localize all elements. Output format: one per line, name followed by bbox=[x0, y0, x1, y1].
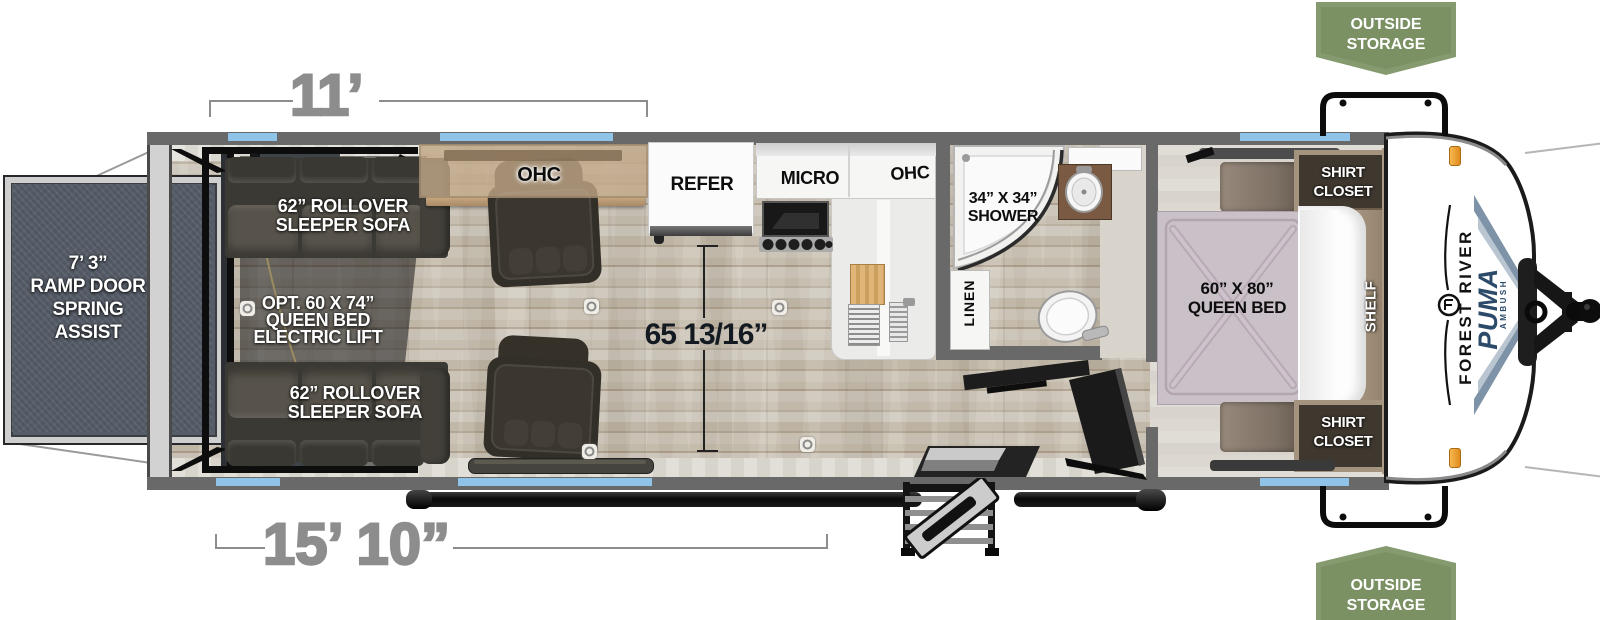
svg-text:OUTSIDE: OUTSIDE bbox=[1350, 577, 1421, 594]
svg-text:STORAGE: STORAGE bbox=[1347, 597, 1426, 614]
svg-text:OUTSIDE: OUTSIDE bbox=[1350, 16, 1421, 33]
svg-text:STORAGE: STORAGE bbox=[1347, 36, 1426, 53]
